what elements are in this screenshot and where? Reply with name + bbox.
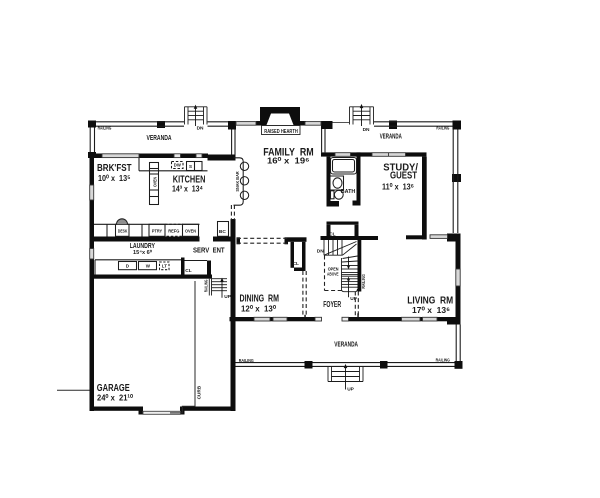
svg-text:REFG: REFG: [168, 229, 180, 234]
svg-text:DESK: DESK: [118, 229, 128, 234]
svg-text:ABOVE: ABOVE: [327, 271, 339, 277]
svg-text:LAUNDRY: LAUNDRY: [130, 243, 156, 250]
svg-text:CL: CL: [293, 261, 299, 267]
svg-text:CL: CL: [329, 231, 335, 237]
svg-text:GUEST: GUEST: [390, 171, 417, 182]
svg-text:DN: DN: [317, 248, 324, 254]
svg-text:UP: UP: [350, 296, 357, 302]
svg-text:BATH: BATH: [341, 189, 356, 195]
svg-text:UP: UP: [347, 387, 354, 393]
svg-text:12⁰ x 13⁰: 12⁰ x 13⁰: [241, 303, 277, 313]
svg-text:S: S: [189, 164, 192, 169]
svg-text:RAILING: RAILING: [203, 279, 208, 292]
svg-text:LT: LT: [162, 264, 167, 269]
svg-text:RAILING: RAILING: [98, 125, 112, 131]
svg-text:VERANDA: VERANDA: [380, 133, 402, 140]
svg-text:FOYER: FOYER: [323, 300, 341, 309]
svg-text:17⁰ x 13⁶: 17⁰ x 13⁶: [412, 305, 450, 315]
svg-text:SNAK BAR: SNAK BAR: [235, 171, 240, 192]
svg-text:SERV ENT: SERV ENT: [193, 248, 225, 255]
svg-text:RAILING: RAILING: [239, 358, 254, 364]
svg-text:RAILING: RAILING: [436, 358, 450, 364]
svg-text:VERANDA: VERANDA: [147, 135, 172, 142]
svg-text:14³ x 13⁴: 14³ x 13⁴: [172, 183, 203, 193]
svg-text:15⁴x 6⁰: 15⁴x 6⁰: [133, 250, 152, 256]
svg-text:RAISED HEARTH: RAISED HEARTH: [264, 129, 298, 135]
svg-text:RAILING: RAILING: [361, 274, 366, 289]
svg-text:CURB: CURB: [197, 385, 202, 399]
svg-text:16⁰ x 19⁶: 16⁰ x 19⁶: [267, 155, 310, 165]
svg-text:W: W: [146, 264, 151, 269]
svg-text:OVEN: OVEN: [185, 229, 196, 234]
svg-text:DW: DW: [174, 163, 182, 168]
svg-text:VERANDA: VERANDA: [334, 341, 358, 348]
svg-text:DN: DN: [197, 125, 204, 131]
svg-text:OVEN: OVEN: [152, 177, 157, 187]
svg-text:DN: DN: [363, 127, 370, 133]
svg-text:24⁰ x 21¹⁰: 24⁰ x 21¹⁰: [97, 393, 134, 403]
svg-text:BC: BC: [219, 229, 226, 235]
svg-text:11⁰ x 13⁶: 11⁰ x 13⁶: [382, 181, 414, 191]
svg-text:PTRY: PTRY: [152, 229, 162, 234]
svg-text:RAILING: RAILING: [436, 126, 449, 132]
svg-text:UP: UP: [224, 294, 231, 300]
svg-text:CL: CL: [185, 268, 191, 274]
svg-text:10⁰ x 13⁵: 10⁰ x 13⁵: [98, 173, 131, 183]
